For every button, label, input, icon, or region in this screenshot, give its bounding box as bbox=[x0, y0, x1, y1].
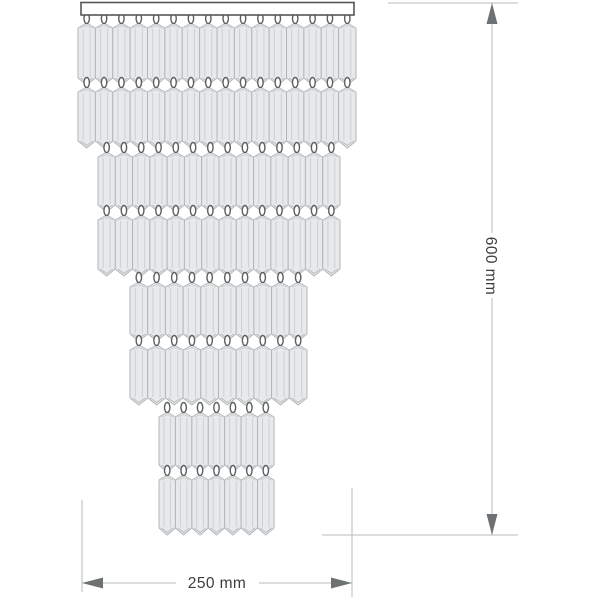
crystal-prism bbox=[165, 87, 182, 148]
crystal-prism bbox=[339, 23, 356, 85]
crystal-prism bbox=[272, 345, 290, 405]
crystal-prism bbox=[184, 215, 201, 276]
crystal-row bbox=[159, 403, 274, 473]
hanging-loop bbox=[165, 466, 170, 476]
crystal-prism bbox=[321, 23, 338, 85]
hanging-loop bbox=[225, 273, 230, 283]
crystal-prism bbox=[236, 215, 253, 276]
crystal-prism bbox=[269, 87, 286, 148]
crystal-prism bbox=[130, 23, 147, 85]
hanging-loop bbox=[258, 78, 263, 88]
hanging-loop bbox=[197, 403, 202, 413]
crystal-prism bbox=[113, 23, 130, 85]
crystal-prism bbox=[254, 215, 271, 276]
hanging-loop bbox=[263, 403, 268, 413]
hanging-loop bbox=[208, 206, 213, 216]
crystal-prism bbox=[219, 215, 236, 276]
hanging-loop bbox=[156, 206, 161, 216]
hanging-loop bbox=[242, 273, 247, 283]
dimension-arrow-left bbox=[82, 578, 103, 589]
crystal-prism bbox=[288, 152, 305, 212]
crystal-prism bbox=[287, 23, 304, 85]
hanging-loop bbox=[173, 143, 178, 153]
hanging-loop bbox=[247, 403, 252, 413]
crystal-prism bbox=[241, 475, 257, 535]
height-dimension: 600 mm bbox=[322, 3, 518, 535]
hanging-loop bbox=[136, 336, 141, 346]
hanging-loop bbox=[294, 143, 299, 153]
hanging-loop bbox=[189, 273, 194, 283]
crystal-row bbox=[78, 78, 356, 149]
hanging-loop bbox=[189, 336, 194, 346]
crystal-prism bbox=[217, 23, 234, 85]
hanging-loop bbox=[190, 143, 195, 153]
crystal-prism bbox=[236, 152, 253, 212]
crystal-row bbox=[98, 206, 340, 277]
crystal-prism bbox=[95, 87, 112, 148]
crystal-prism bbox=[148, 345, 166, 405]
crystal-prism bbox=[252, 23, 269, 85]
crystal-prism bbox=[113, 87, 130, 148]
hanging-loop bbox=[172, 336, 177, 346]
crystal-prism bbox=[183, 345, 201, 405]
crystal-prism bbox=[182, 87, 199, 148]
chandelier bbox=[78, 3, 356, 536]
crystal-prism bbox=[271, 215, 288, 276]
crystal-prism bbox=[115, 152, 132, 212]
hanging-loop bbox=[260, 336, 265, 346]
hanging-loop bbox=[214, 403, 219, 413]
crystal-prism bbox=[148, 282, 166, 341]
crystal-prism bbox=[184, 152, 201, 212]
crystal-tier-2 bbox=[98, 143, 340, 277]
hanging-loop bbox=[225, 336, 230, 346]
crystal-prism bbox=[183, 282, 201, 341]
dimension-arrow-down bbox=[487, 514, 498, 535]
crystal-prism bbox=[289, 345, 307, 405]
crystal-prism bbox=[192, 412, 208, 472]
hanging-loop bbox=[242, 206, 247, 216]
hanging-loop bbox=[136, 273, 141, 283]
crystal-prism bbox=[305, 152, 322, 212]
crystal-prism bbox=[258, 412, 274, 472]
crystal-prism bbox=[78, 23, 95, 85]
crystal-row bbox=[159, 466, 274, 536]
hanging-loop bbox=[240, 78, 245, 88]
crystal-prism bbox=[208, 412, 224, 472]
crystal-prism bbox=[258, 475, 274, 535]
crystal-prism bbox=[289, 282, 307, 341]
crystal-prism bbox=[234, 87, 251, 148]
dimension-arrow-right bbox=[331, 578, 352, 589]
hanging-loop bbox=[206, 78, 211, 88]
crystal-prism bbox=[182, 23, 199, 85]
crystal-prism bbox=[225, 475, 241, 535]
hanging-loop bbox=[260, 143, 265, 153]
crystal-prism bbox=[208, 475, 224, 535]
crystal-prism bbox=[150, 215, 167, 276]
crystal-prism bbox=[175, 475, 191, 535]
hanging-loop bbox=[181, 466, 186, 476]
crystal-prism bbox=[95, 23, 112, 85]
hanging-loop bbox=[207, 273, 212, 283]
hanging-loop bbox=[311, 143, 316, 153]
hanging-loop bbox=[156, 143, 161, 153]
hanging-loop bbox=[154, 336, 159, 346]
crystal-prism bbox=[133, 215, 150, 276]
crystal-prism bbox=[252, 87, 269, 148]
crystal-prism bbox=[201, 282, 219, 341]
hanging-loop bbox=[197, 466, 202, 476]
hanging-loop bbox=[139, 143, 144, 153]
crystal-prism bbox=[304, 87, 321, 148]
crystal-prism bbox=[148, 23, 165, 85]
hanging-loop bbox=[295, 273, 300, 283]
hanging-loop bbox=[327, 78, 332, 88]
crystal-prism bbox=[219, 152, 236, 212]
crystal-prism bbox=[323, 215, 340, 276]
crystal-prism bbox=[288, 215, 305, 276]
crystal-prism bbox=[167, 215, 184, 276]
crystal-prism bbox=[305, 215, 322, 276]
hanging-loop bbox=[247, 466, 252, 476]
crystal-prism bbox=[165, 282, 183, 341]
crystal-prism bbox=[159, 475, 175, 535]
crystal-prism bbox=[225, 412, 241, 472]
hanging-loop bbox=[242, 143, 247, 153]
crystal-prism bbox=[200, 23, 217, 85]
crystal-tier-3 bbox=[130, 273, 307, 406]
crystal-tiers bbox=[78, 14, 356, 536]
hanging-loop bbox=[295, 336, 300, 346]
crystal-prism bbox=[339, 87, 356, 148]
hanging-loop bbox=[119, 78, 124, 88]
crystal-prism bbox=[159, 412, 175, 472]
crystal-prism bbox=[175, 412, 191, 472]
hanging-loop bbox=[171, 78, 176, 88]
crystal-prism bbox=[236, 282, 254, 341]
crystal-prism bbox=[234, 23, 251, 85]
drawing-canvas: 600 mm 250 mm bbox=[0, 0, 600, 600]
hanging-loop bbox=[225, 143, 230, 153]
crystal-prism bbox=[78, 87, 95, 148]
crystal-prism bbox=[167, 152, 184, 212]
crystal-prism bbox=[202, 152, 219, 212]
hanging-loop bbox=[275, 78, 280, 88]
crystal-prism bbox=[148, 87, 165, 148]
crystal-prism bbox=[304, 23, 321, 85]
crystal-prism bbox=[130, 282, 148, 341]
hanging-loop bbox=[104, 206, 109, 216]
crystal-row bbox=[78, 14, 356, 86]
hanging-loop bbox=[173, 206, 178, 216]
hanging-loop bbox=[292, 78, 297, 88]
crystal-prism bbox=[130, 345, 148, 405]
width-dimension-label: 250 mm bbox=[188, 575, 246, 592]
chandelier-technical-drawing: 600 mm 250 mm bbox=[0, 0, 600, 600]
ceiling-mount-plate bbox=[81, 3, 354, 16]
hanging-loop bbox=[230, 466, 235, 476]
crystal-prism bbox=[165, 345, 183, 405]
crystal-prism bbox=[271, 152, 288, 212]
hanging-loop bbox=[225, 206, 230, 216]
crystal-prism bbox=[98, 152, 115, 212]
crystal-prism bbox=[272, 282, 290, 341]
hanging-loop bbox=[136, 78, 141, 88]
hanging-loop bbox=[153, 78, 158, 88]
hanging-loop bbox=[310, 78, 315, 88]
hanging-loop bbox=[277, 143, 282, 153]
hanging-loop bbox=[260, 206, 265, 216]
hanging-loop bbox=[181, 403, 186, 413]
hanging-loop bbox=[101, 78, 106, 88]
hanging-loop bbox=[242, 336, 247, 346]
crystal-prism bbox=[236, 345, 254, 405]
crystal-prism bbox=[269, 23, 286, 85]
crystal-prism bbox=[321, 87, 338, 148]
crystal-prism bbox=[219, 345, 237, 405]
crystal-prism bbox=[254, 152, 271, 212]
crystal-prism bbox=[130, 87, 147, 148]
hanging-loop bbox=[329, 206, 334, 216]
crystal-tier-1 bbox=[78, 14, 356, 149]
hanging-loop bbox=[172, 273, 177, 283]
crystal-row bbox=[130, 336, 307, 406]
hanging-loop bbox=[165, 403, 170, 413]
crystal-prism bbox=[323, 152, 340, 212]
hanging-loop bbox=[294, 206, 299, 216]
dimension-arrow-up bbox=[487, 3, 498, 24]
hanging-loop bbox=[263, 466, 268, 476]
crystal-row bbox=[98, 143, 340, 213]
crystal-prism bbox=[165, 23, 182, 85]
crystal-prism bbox=[254, 282, 272, 341]
crystal-prism bbox=[217, 87, 234, 148]
height-dimension-label: 600 mm bbox=[482, 237, 499, 295]
hanging-loop bbox=[223, 78, 228, 88]
hanging-loop bbox=[277, 206, 282, 216]
hanging-loop bbox=[329, 143, 334, 153]
hanging-loop bbox=[121, 206, 126, 216]
crystal-prism bbox=[254, 345, 272, 405]
crystal-prism bbox=[200, 87, 217, 148]
hanging-loop bbox=[84, 78, 89, 88]
crystal-prism bbox=[150, 152, 167, 212]
hanging-loop bbox=[208, 143, 213, 153]
hanging-loop bbox=[345, 78, 350, 88]
crystal-row bbox=[130, 273, 307, 342]
hanging-loop bbox=[188, 78, 193, 88]
crystal-prism bbox=[115, 215, 132, 276]
crystal-tier-4 bbox=[159, 403, 274, 536]
hanging-loop bbox=[311, 206, 316, 216]
hanging-loop bbox=[278, 273, 283, 283]
hanging-loop bbox=[214, 466, 219, 476]
crystal-prism bbox=[287, 87, 304, 148]
hanging-loop bbox=[230, 403, 235, 413]
hanging-loop bbox=[260, 273, 265, 283]
crystal-prism bbox=[201, 345, 219, 405]
hanging-loop bbox=[104, 143, 109, 153]
hanging-loop bbox=[154, 273, 159, 283]
hanging-loop bbox=[139, 206, 144, 216]
hanging-loop bbox=[190, 206, 195, 216]
hanging-loop bbox=[207, 336, 212, 346]
hanging-loop bbox=[121, 143, 126, 153]
crystal-prism bbox=[192, 475, 208, 535]
hanging-loop bbox=[278, 336, 283, 346]
crystal-prism bbox=[202, 215, 219, 276]
crystal-prism bbox=[219, 282, 237, 341]
crystal-prism bbox=[133, 152, 150, 212]
crystal-prism bbox=[241, 412, 257, 472]
crystal-prism bbox=[98, 215, 115, 276]
